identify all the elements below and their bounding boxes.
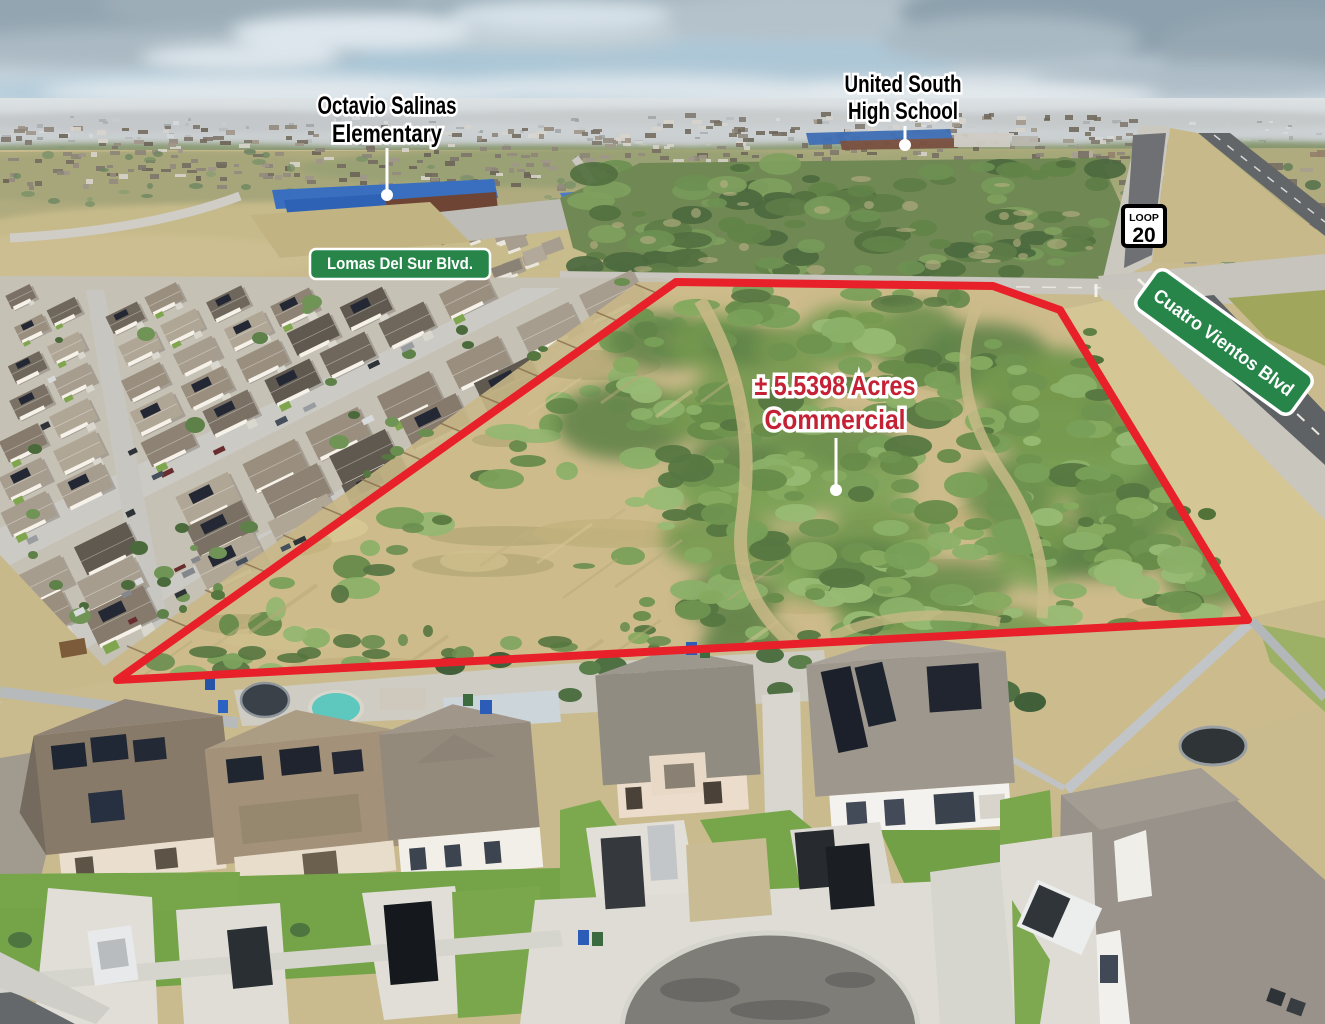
svg-text:Elementary: Elementary bbox=[332, 120, 442, 148]
svg-text:± 5.5398 Acres: ± 5.5398 Acres bbox=[755, 370, 916, 401]
svg-text:20: 20 bbox=[1132, 224, 1155, 247]
svg-text:United South: United South bbox=[845, 71, 962, 98]
svg-text:Lomas Del Sur Blvd.: Lomas Del Sur Blvd. bbox=[327, 254, 473, 273]
svg-text:High School: High School bbox=[848, 98, 958, 125]
svg-text:Octavio Salinas: Octavio Salinas bbox=[318, 92, 457, 120]
svg-text:Commercial: Commercial bbox=[765, 404, 906, 435]
svg-text:LOOP: LOOP bbox=[1129, 212, 1159, 224]
